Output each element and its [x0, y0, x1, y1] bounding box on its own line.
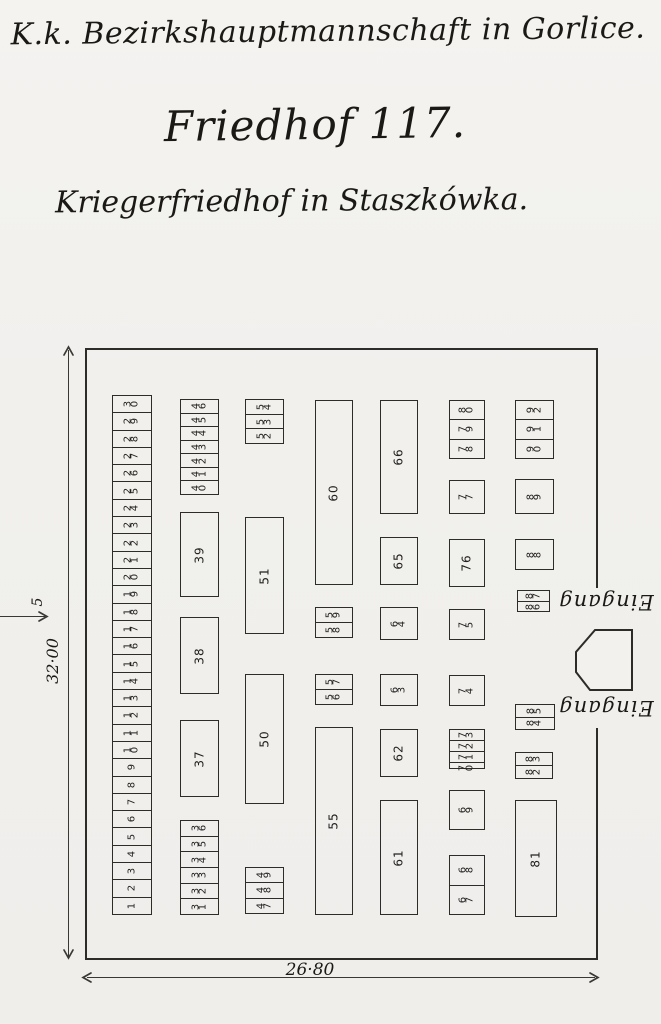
plot-number: 83 — [527, 754, 541, 764]
grave-cell-68: 68 — [450, 856, 484, 885]
grave-cell-46: 46 — [181, 400, 218, 413]
grave-cell-84: 84 — [516, 717, 554, 730]
page-subtitle: Kriegerfriedhof in Staszkówka. — [55, 183, 465, 221]
grave-63: 63 — [380, 674, 418, 706]
plot-number: 29 — [125, 416, 139, 426]
grave-61: 61 — [380, 800, 418, 915]
grave-55: 55 — [315, 727, 353, 915]
arrowhead-down-icon — [62, 947, 75, 960]
plot-number-digit: 2 — [263, 433, 273, 440]
plot-number: 38 — [193, 647, 207, 664]
grave-cell-1: 1 — [113, 897, 151, 914]
plot-number: 32 — [193, 886, 207, 896]
plot-number-digit: 8 — [131, 608, 141, 615]
plot-number: 19 — [125, 589, 139, 599]
right-border-upper — [596, 348, 598, 588]
grave-cell-43: 43 — [181, 440, 218, 454]
plot-number-digit: 3 — [398, 687, 408, 694]
grave-89: 89 — [515, 479, 554, 514]
plot-number: 25 — [125, 486, 139, 496]
plot-number-digit: 7 — [263, 902, 273, 909]
right-border-lower — [596, 728, 598, 960]
plot-number-digit: 9 — [466, 807, 476, 814]
plot-number: 39 — [193, 546, 207, 563]
grave-38: 38 — [180, 617, 219, 694]
plot-number: 11 — [125, 728, 139, 738]
plot-number-digit: 1 — [131, 729, 141, 736]
plot-number-digit: 9 — [131, 418, 141, 425]
plot-number-digit: 8 — [131, 435, 141, 442]
dimension-width-label: 26·80 — [250, 960, 370, 980]
cemetery-outline: 3029282726252423222120191817161514131211… — [85, 348, 598, 960]
plot-number: 81 — [529, 850, 543, 867]
plot-number: 27 — [125, 451, 139, 461]
entrance-structure — [574, 629, 634, 691]
grave-cell-78: 78 — [450, 439, 484, 458]
graves-40-46: 46454443424140 — [180, 399, 219, 495]
entrance-upper-label: Eingang — [556, 586, 656, 614]
grave-cell-3: 3 — [113, 862, 151, 879]
grave-50: 50 — [245, 674, 284, 804]
grave-cell-12: 12 — [113, 706, 151, 723]
plot-number-digit: 6 — [131, 470, 141, 477]
plot-number: 41 — [193, 469, 207, 479]
grave-cell-79: 79 — [450, 419, 484, 438]
plot-number-digit: 5 — [131, 487, 141, 494]
plot-number-digit: 3 — [198, 872, 208, 879]
plot-number: 84 — [528, 718, 542, 728]
plot-number-digit: 6 — [131, 643, 141, 650]
plot-number-digit: 5 — [466, 621, 476, 628]
plot-number: 91 — [528, 424, 542, 434]
plot-number-digit: 1 — [127, 902, 137, 909]
plot-number: 69 — [460, 805, 474, 815]
plot-number: 49 — [258, 870, 272, 880]
plot-number-digit: 7 — [333, 679, 343, 686]
plot-number-digit: 3 — [131, 522, 141, 529]
grave-cell-25: 25 — [113, 481, 151, 498]
plot-number: 55 — [327, 812, 341, 829]
plot-number-digit: 0 — [466, 407, 476, 414]
scanned-cemetery-plan-page: K.k. Bezirkshauptmannschaft in Gorlice. … — [0, 0, 661, 1024]
grave-cell-28: 28 — [113, 430, 151, 447]
page-title: Friedhof 117. — [150, 98, 481, 152]
plot-number: 59 — [327, 610, 341, 620]
grave-cell-4: 4 — [113, 845, 151, 862]
grave-cell-86: 86 — [518, 601, 549, 612]
plot-number: 48 — [258, 885, 272, 895]
grave-cell-21: 21 — [113, 551, 151, 568]
graves-58-59: 5958 — [315, 607, 353, 638]
grave-cell-34: 34 — [181, 851, 218, 867]
grave-37: 37 — [180, 720, 219, 797]
grave-cell-30: 30 — [113, 396, 151, 412]
plot-number-digit: 1 — [198, 471, 208, 478]
plot-number-digit: 6 — [532, 604, 542, 611]
grave-cell-32: 32 — [181, 883, 218, 899]
plot-number-digit: 3 — [198, 444, 208, 451]
plot-number-digit: 1 — [131, 556, 141, 563]
grave-cell-73: 73 — [450, 730, 484, 740]
graves-78-80: 807978 — [449, 400, 485, 459]
plot-number-digit: 5 — [131, 660, 141, 667]
graves-56-57: 5756 — [315, 674, 353, 705]
plot-number: 3 — [129, 866, 136, 876]
plot-number: 58 — [327, 625, 341, 635]
grave-cell-8: 8 — [113, 776, 151, 793]
plot-number: 40 — [193, 483, 207, 493]
plot-number: 62 — [392, 744, 406, 761]
plot-number: 13 — [125, 693, 139, 703]
plot-number: 72 — [460, 741, 474, 751]
plot-number-digit: 9 — [131, 591, 141, 598]
plot-number: 9 — [129, 762, 136, 772]
arrowhead-right-icon — [587, 971, 600, 984]
plot-number: 24 — [125, 503, 139, 513]
plot-number: 7 — [129, 797, 136, 807]
grave-cell-52: 52 — [246, 428, 283, 443]
plot-number: 90 — [528, 444, 542, 454]
plot-number-digit: 8 — [263, 887, 273, 894]
plot-number: 26 — [125, 468, 139, 478]
plot-number: 71 — [460, 752, 474, 762]
plot-number-digit: 4 — [263, 403, 273, 410]
grave-cell-27: 27 — [113, 447, 151, 464]
grave-62: 62 — [380, 729, 418, 777]
plot-number-digit: 2 — [198, 888, 208, 895]
plot-number-digit: 8 — [533, 551, 543, 558]
grave-cell-29: 29 — [113, 412, 151, 429]
grave-cell-41: 41 — [181, 467, 218, 481]
plot-number-digit: 3 — [533, 756, 543, 763]
plot-number: 33 — [193, 870, 207, 880]
plot-number: 31 — [193, 902, 207, 912]
grave-cell-11: 11 — [113, 724, 151, 741]
plot-number-digit: 0 — [131, 574, 141, 581]
plot-number: 56 — [327, 692, 341, 702]
plot-number: 30 — [125, 399, 139, 409]
dimension-line-vertical — [68, 350, 69, 958]
grave-cell-36: 36 — [181, 821, 218, 836]
arrowhead-up-icon — [62, 345, 75, 358]
grave-cell-72: 72 — [450, 740, 484, 751]
plot-number-digit: 9 — [263, 872, 273, 879]
grave-cell-31: 31 — [181, 898, 218, 914]
plot-number-digit: 3 — [466, 732, 476, 739]
grave-cell-83: 83 — [516, 753, 552, 765]
grave-cell-22: 22 — [113, 533, 151, 550]
plot-number: 16 — [125, 641, 139, 651]
plot-number: 86 — [527, 602, 541, 612]
plot-number-digit: 4 — [198, 430, 208, 437]
grave-cell-23: 23 — [113, 516, 151, 533]
graves-84-85: 8584 — [515, 704, 555, 730]
grave-60: 60 — [315, 400, 353, 585]
plot-number: 52 — [258, 431, 272, 441]
plot-number-digit: 9 — [127, 764, 137, 771]
plot-number-digit: 6 — [127, 816, 137, 823]
grave-cell-56: 56 — [316, 689, 352, 704]
plot-number-digit: 2 — [466, 743, 476, 750]
plot-number: 42 — [193, 456, 207, 466]
plot-number: 64 — [392, 619, 406, 629]
grave-cell-35: 35 — [181, 836, 218, 852]
grave-cell-58: 58 — [316, 622, 352, 637]
plot-number-digit: 2 — [198, 457, 208, 464]
plot-number: 70 — [460, 763, 474, 773]
grave-cell-48: 48 — [246, 882, 283, 897]
plot-number-digit: 5 — [534, 707, 544, 714]
plot-number-digit: 5 — [198, 416, 208, 423]
plot-number: 34 — [193, 855, 207, 865]
plot-number-digit: 2 — [131, 539, 141, 546]
plot-number: 75 — [460, 620, 474, 630]
grave-cell-9: 9 — [113, 758, 151, 775]
plot-number: 66 — [392, 448, 406, 465]
plot-number: 63 — [392, 685, 406, 695]
grave-81: 81 — [515, 800, 557, 917]
graves-70-73: 73727170 — [449, 729, 485, 769]
grave-cell-2: 2 — [113, 879, 151, 896]
grave-cell-67: 67 — [450, 885, 484, 915]
plot-number-digit: 4 — [466, 687, 476, 694]
plot-number-digit: 7 — [131, 626, 141, 633]
plot-number: 6 — [129, 814, 136, 824]
plot-number-digit: 0 — [131, 401, 141, 408]
grave-65: 65 — [380, 537, 418, 585]
grave-39: 39 — [180, 512, 219, 597]
plot-number-digit: 4 — [198, 856, 208, 863]
plot-number: 12 — [125, 710, 139, 720]
plot-number: 1 — [129, 901, 136, 911]
plot-number: 74 — [460, 686, 474, 696]
plot-number-digit: 7 — [532, 593, 542, 600]
plot-number-digit: 1 — [466, 754, 476, 761]
plot-number-digit: 9 — [533, 493, 543, 500]
arrowhead-left-icon — [81, 971, 94, 984]
grave-cell-87: 87 — [518, 591, 549, 601]
plot-number-digit: 7 — [131, 453, 141, 460]
grave-cell-17: 17 — [113, 620, 151, 637]
plot-number: 54 — [258, 402, 272, 412]
grave-cell-14: 14 — [113, 672, 151, 689]
grave-cell-7: 7 — [113, 793, 151, 810]
plot-number: 53 — [258, 417, 272, 427]
grave-cell-16: 16 — [113, 637, 151, 654]
plot-number: 77 — [460, 492, 474, 502]
entrance-lower-label: Eingang — [556, 692, 656, 720]
grave-cell-6: 6 — [113, 810, 151, 827]
plot-number-digit: 4 — [534, 720, 544, 727]
offset-label: 5 — [30, 591, 46, 613]
grave-75: 75 — [449, 609, 485, 640]
plot-number: 5 — [129, 832, 136, 842]
plot-number-digit: 0 — [198, 484, 208, 491]
grave-cell-33: 33 — [181, 867, 218, 883]
plot-number: 89 — [528, 492, 542, 502]
graves-1-30: 3029282726252423222120191817161514131211… — [112, 395, 152, 915]
grave-cell-45: 45 — [181, 413, 218, 427]
plot-number: 78 — [460, 444, 474, 454]
grave-cell-82: 82 — [516, 765, 552, 778]
document-heading: K.k. Bezirkshauptmannschaft in Gorlice. — [8, 11, 648, 53]
plot-number: 51 — [258, 567, 272, 584]
graves-90-92: 929190 — [515, 400, 554, 459]
plot-number-digit: 4 — [131, 504, 141, 511]
plot-number-digit: 8 — [127, 781, 137, 788]
plot-number: 50 — [258, 730, 272, 747]
plot-number-digit: 4 — [127, 850, 137, 857]
graves-86-87: 8786 — [517, 590, 550, 612]
plot-number: 15 — [125, 659, 139, 669]
plot-number-digit: 2 — [131, 712, 141, 719]
graves-67-68: 6867 — [449, 855, 485, 915]
grave-77: 77 — [449, 480, 485, 514]
plot-number: 18 — [125, 607, 139, 617]
plot-number-digit: 6 — [198, 403, 208, 410]
grave-69: 69 — [449, 790, 485, 830]
plot-number: 43 — [193, 442, 207, 452]
plot-number: 76 — [460, 554, 474, 571]
grave-cell-18: 18 — [113, 603, 151, 620]
plot-number: 37 — [193, 750, 207, 767]
plot-number-digit: 2 — [533, 407, 543, 414]
plot-number-digit: 1 — [198, 903, 208, 910]
grave-cell-15: 15 — [113, 654, 151, 671]
plot-number-digit: 3 — [131, 695, 141, 702]
plot-number-digit: 9 — [333, 612, 343, 619]
plot-number: 47 — [258, 901, 272, 911]
plot-number: 68 — [460, 865, 474, 875]
grave-76: 76 — [449, 539, 485, 587]
grave-66: 66 — [380, 400, 418, 514]
grave-cell-10: 10 — [113, 741, 151, 758]
plot-number: 23 — [125, 520, 139, 530]
grave-cell-49: 49 — [246, 868, 283, 882]
plot-number-digit: 4 — [398, 620, 408, 627]
grave-cell-54: 54 — [246, 400, 283, 414]
plot-number-digit: 5 — [127, 833, 137, 840]
plot-number-digit: 1 — [533, 426, 543, 433]
plot-number-digit: 6 — [198, 825, 208, 832]
plot-number-digit: 9 — [466, 426, 476, 433]
graves-52-54: 545352 — [245, 399, 284, 444]
grave-64: 64 — [380, 607, 418, 640]
plot-number: 22 — [125, 538, 139, 548]
plot-number-digit: 5 — [198, 841, 208, 848]
grave-cell-13: 13 — [113, 689, 151, 706]
plot-number: 36 — [193, 823, 207, 833]
plot-number: 92 — [528, 405, 542, 415]
plot-number: 46 — [193, 401, 207, 411]
plot-number: 65 — [392, 552, 406, 569]
plot-number-digit: 3 — [127, 868, 137, 875]
plot-number-digit: 2 — [533, 769, 543, 776]
dimension-height-label: 32·00 — [43, 623, 61, 699]
plot-number: 60 — [327, 484, 341, 501]
grave-cell-26: 26 — [113, 464, 151, 481]
grave-cell-59: 59 — [316, 608, 352, 622]
plot-number: 4 — [129, 849, 136, 859]
plot-number: 45 — [193, 415, 207, 425]
plot-number: 44 — [193, 428, 207, 438]
grave-cell-20: 20 — [113, 568, 151, 585]
plot-number: 73 — [460, 730, 474, 740]
plot-number: 8 — [129, 780, 136, 790]
graves-31-36: 363534333231 — [180, 820, 219, 915]
grave-cell-85: 85 — [516, 705, 554, 717]
plot-number-digit: 8 — [466, 445, 476, 452]
graves-82-83: 8382 — [515, 752, 553, 779]
grave-cell-19: 19 — [113, 585, 151, 602]
plot-number-digit: 0 — [131, 747, 141, 754]
plot-number: 10 — [125, 745, 139, 755]
plot-number: 14 — [125, 676, 139, 686]
plot-number: 79 — [460, 424, 474, 434]
plot-number-digit: 0 — [466, 765, 476, 772]
plot-number: 82 — [527, 767, 541, 777]
plot-number-digit: 7 — [466, 896, 476, 903]
plot-number: 61 — [392, 849, 406, 866]
grave-cell-90: 90 — [516, 439, 553, 458]
grave-cell-71: 71 — [450, 751, 484, 762]
grave-cell-57: 57 — [316, 675, 352, 689]
plot-number: 17 — [125, 624, 139, 634]
grave-cell-80: 80 — [450, 401, 484, 419]
plot-number: 80 — [460, 405, 474, 415]
plot-number: 2 — [129, 883, 136, 893]
grave-cell-40: 40 — [181, 480, 218, 494]
plot-number: 87 — [527, 591, 541, 601]
plot-number: 28 — [125, 434, 139, 444]
grave-cell-42: 42 — [181, 453, 218, 467]
plot-number-digit: 4 — [131, 677, 141, 684]
plot-number: 57 — [327, 677, 341, 687]
grave-cell-44: 44 — [181, 426, 218, 440]
grave-cell-24: 24 — [113, 499, 151, 516]
grave-cell-91: 91 — [516, 419, 553, 438]
plot-number-digit: 8 — [333, 627, 343, 634]
plot-number-digit: 2 — [127, 885, 137, 892]
plot-number: 85 — [528, 706, 542, 716]
graves-47-49: 494847 — [245, 867, 284, 914]
grave-51: 51 — [245, 517, 284, 634]
plot-number: 67 — [460, 895, 474, 905]
plot-number-digit: 0 — [533, 445, 543, 452]
grave-cell-92: 92 — [516, 401, 553, 419]
plot-number-digit: 3 — [263, 418, 273, 425]
plot-number-digit: 6 — [333, 694, 343, 701]
plot-number: 35 — [193, 839, 207, 849]
grave-cell-47: 47 — [246, 898, 283, 913]
grave-cell-70: 70 — [450, 762, 484, 773]
grave-88: 88 — [515, 539, 554, 570]
plot-number: 21 — [125, 555, 139, 565]
grave-74: 74 — [449, 675, 485, 706]
plot-number-digit: 7 — [127, 798, 137, 805]
plot-number: 88 — [528, 550, 542, 560]
plot-number-digit: 7 — [466, 494, 476, 501]
plot-number: 20 — [125, 572, 139, 582]
grave-cell-53: 53 — [246, 414, 283, 429]
plot-number-digit: 8 — [466, 867, 476, 874]
grave-cell-5: 5 — [113, 827, 151, 844]
